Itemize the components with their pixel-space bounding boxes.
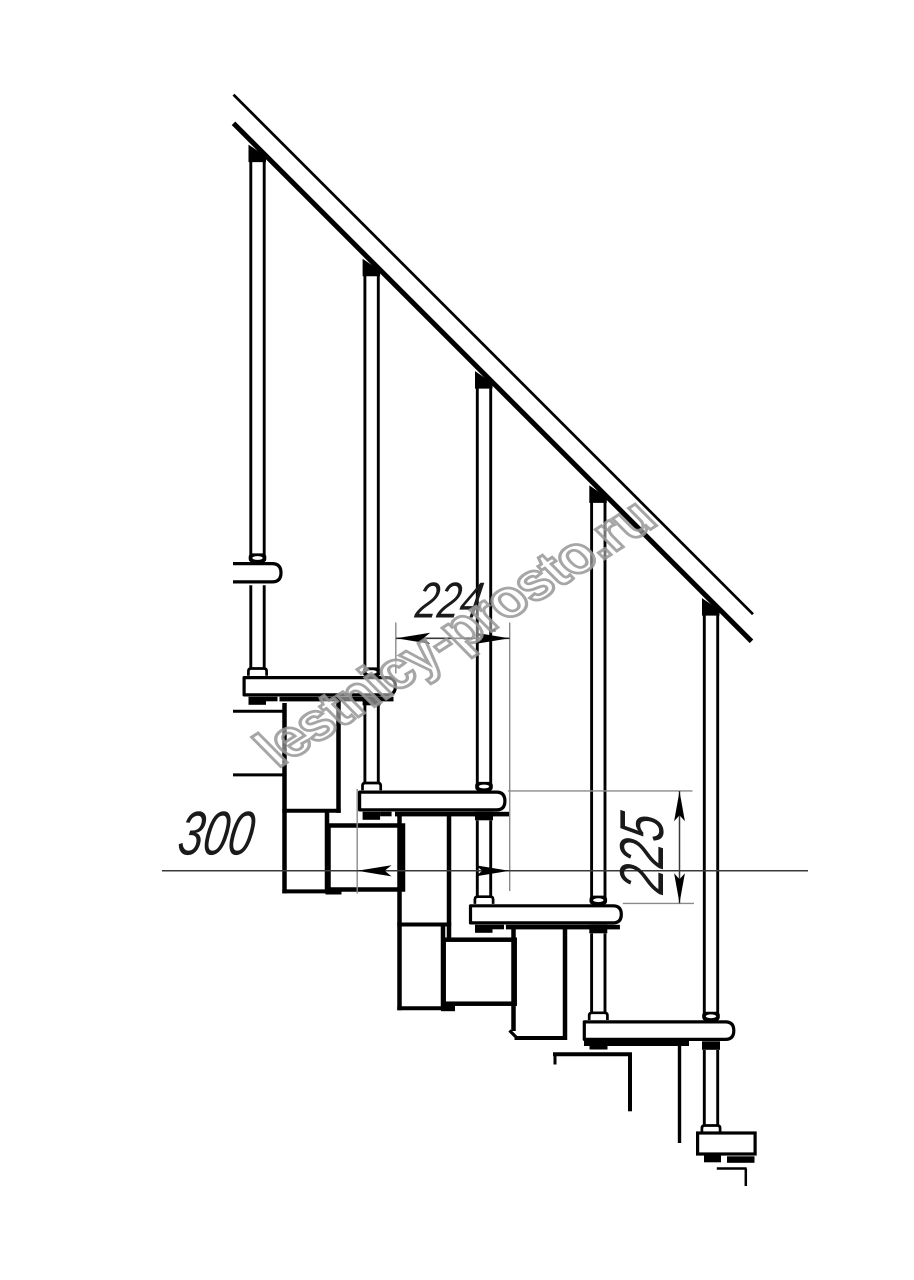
svg-text:225: 225: [607, 808, 676, 899]
svg-text:300: 300: [174, 799, 260, 868]
